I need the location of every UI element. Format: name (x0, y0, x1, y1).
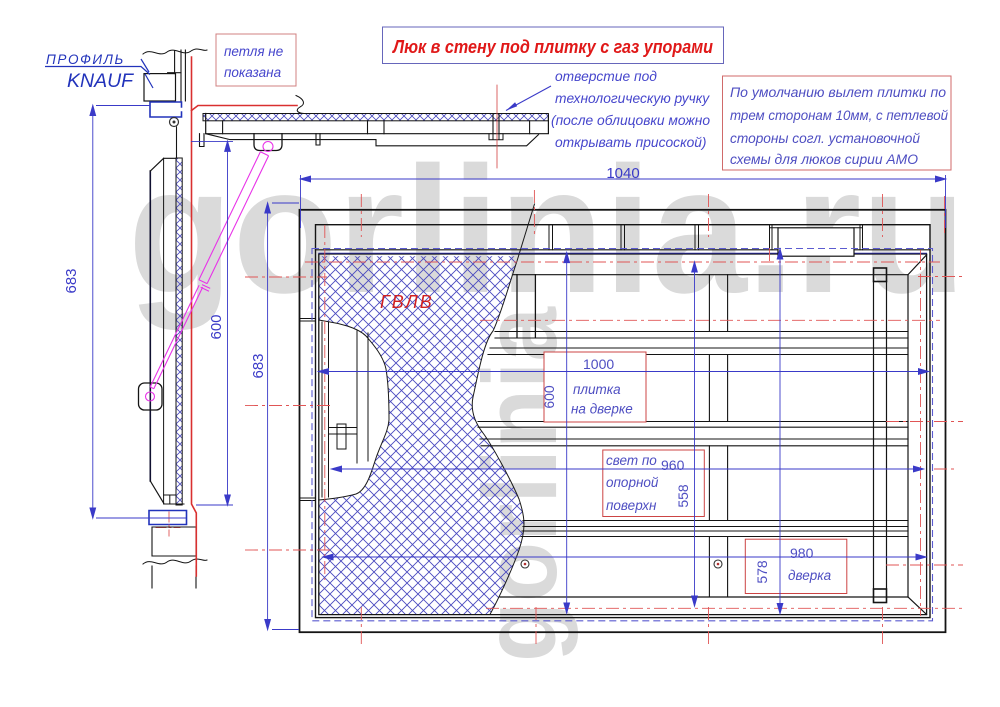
svg-text:показана: показана (224, 65, 282, 80)
svg-text:980: 980 (790, 545, 814, 561)
svg-text:KNAUF: KNAUF (67, 70, 134, 92)
svg-text:683: 683 (250, 353, 267, 378)
svg-text:960: 960 (661, 457, 685, 473)
svg-text:стороны согл. установочной: стороны согл. установочной (730, 131, 920, 146)
svg-text:558: 558 (675, 484, 691, 508)
svg-text:683: 683 (63, 268, 80, 293)
svg-text:(после облицовки можно: (после облицовки можно (551, 113, 710, 128)
svg-text:опорной: опорной (606, 475, 659, 490)
svg-text:1040: 1040 (606, 165, 639, 182)
svg-text:на дверке: на дверке (571, 402, 633, 417)
svg-text:1000: 1000 (583, 356, 614, 372)
svg-text:По умолчанию вылет плитки по: По умолчанию вылет плитки по (730, 85, 946, 100)
svg-text:петля не: петля не (224, 44, 283, 59)
svg-text:600: 600 (541, 385, 557, 409)
svg-text:схемы для люков сирии АМО: схемы для люков сирии АМО (730, 152, 918, 167)
svg-text:дверка: дверка (788, 568, 832, 583)
svg-text:ГВЛВ: ГВЛВ (380, 292, 434, 312)
svg-text:открывать присоской): открывать присоской) (555, 135, 707, 150)
svg-text:технологическую ручку: технологическую ручку (555, 91, 710, 106)
svg-text:Люк в стену под плитку с газ у: Люк в стену под плитку с газ упорами (391, 36, 713, 57)
svg-text:отверстие под: отверстие под (555, 69, 657, 84)
svg-text:ПРОФИЛЬ: ПРОФИЛЬ (46, 52, 125, 67)
svg-text:600: 600 (208, 314, 225, 339)
svg-text:свет по: свет по (606, 453, 657, 468)
svg-text:плитка: плитка (573, 382, 621, 397)
svg-text:поверхн: поверхн (606, 498, 657, 513)
svg-text:578: 578 (754, 560, 770, 584)
svg-text:трем сторонам 10мм, с петлевой: трем сторонам 10мм, с петлевой (730, 108, 948, 123)
